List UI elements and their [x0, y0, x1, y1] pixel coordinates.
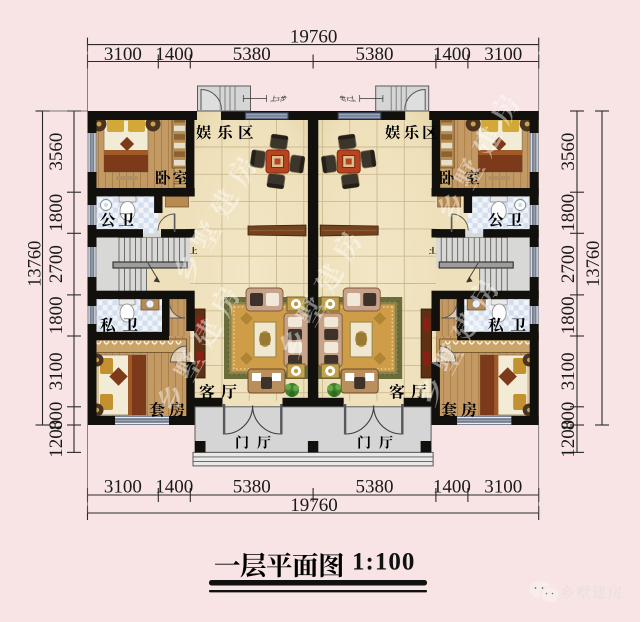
svg-text:3560: 3560 — [46, 133, 67, 171]
svg-text:1200: 1200 — [558, 420, 579, 458]
svg-text:1400: 1400 — [433, 44, 471, 65]
svg-text:3100: 3100 — [104, 44, 142, 65]
svg-text:1800: 1800 — [46, 194, 67, 232]
svg-text:3100: 3100 — [104, 477, 142, 498]
svg-text:13760: 13760 — [26, 241, 46, 287]
svg-text:1800: 1800 — [46, 296, 67, 334]
svg-text:3100: 3100 — [484, 477, 522, 498]
svg-text:上3步: 上3步 — [270, 95, 287, 103]
svg-text:3100: 3100 — [484, 44, 522, 65]
svg-text:5380: 5380 — [233, 44, 271, 65]
svg-text:1400: 1400 — [155, 44, 193, 65]
svg-text:19760: 19760 — [290, 26, 338, 47]
svg-text:2700: 2700 — [46, 245, 67, 283]
svg-text:3560: 3560 — [558, 133, 579, 171]
svg-text:5380: 5380 — [356, 44, 394, 65]
svg-text:1800: 1800 — [558, 296, 579, 334]
svg-text:2700: 2700 — [558, 245, 579, 283]
svg-text:3100: 3100 — [558, 352, 579, 390]
svg-text:1:100: 1:100 — [352, 549, 415, 576]
svg-text:5380: 5380 — [233, 477, 271, 498]
svg-text:1800: 1800 — [558, 194, 579, 232]
svg-text:1400: 1400 — [155, 477, 193, 498]
svg-text:13760: 13760 — [584, 241, 604, 287]
svg-text:3100: 3100 — [46, 352, 67, 390]
svg-text:1400: 1400 — [433, 477, 471, 498]
svg-text:5380: 5380 — [356, 477, 394, 498]
svg-text:19760: 19760 — [290, 495, 338, 516]
